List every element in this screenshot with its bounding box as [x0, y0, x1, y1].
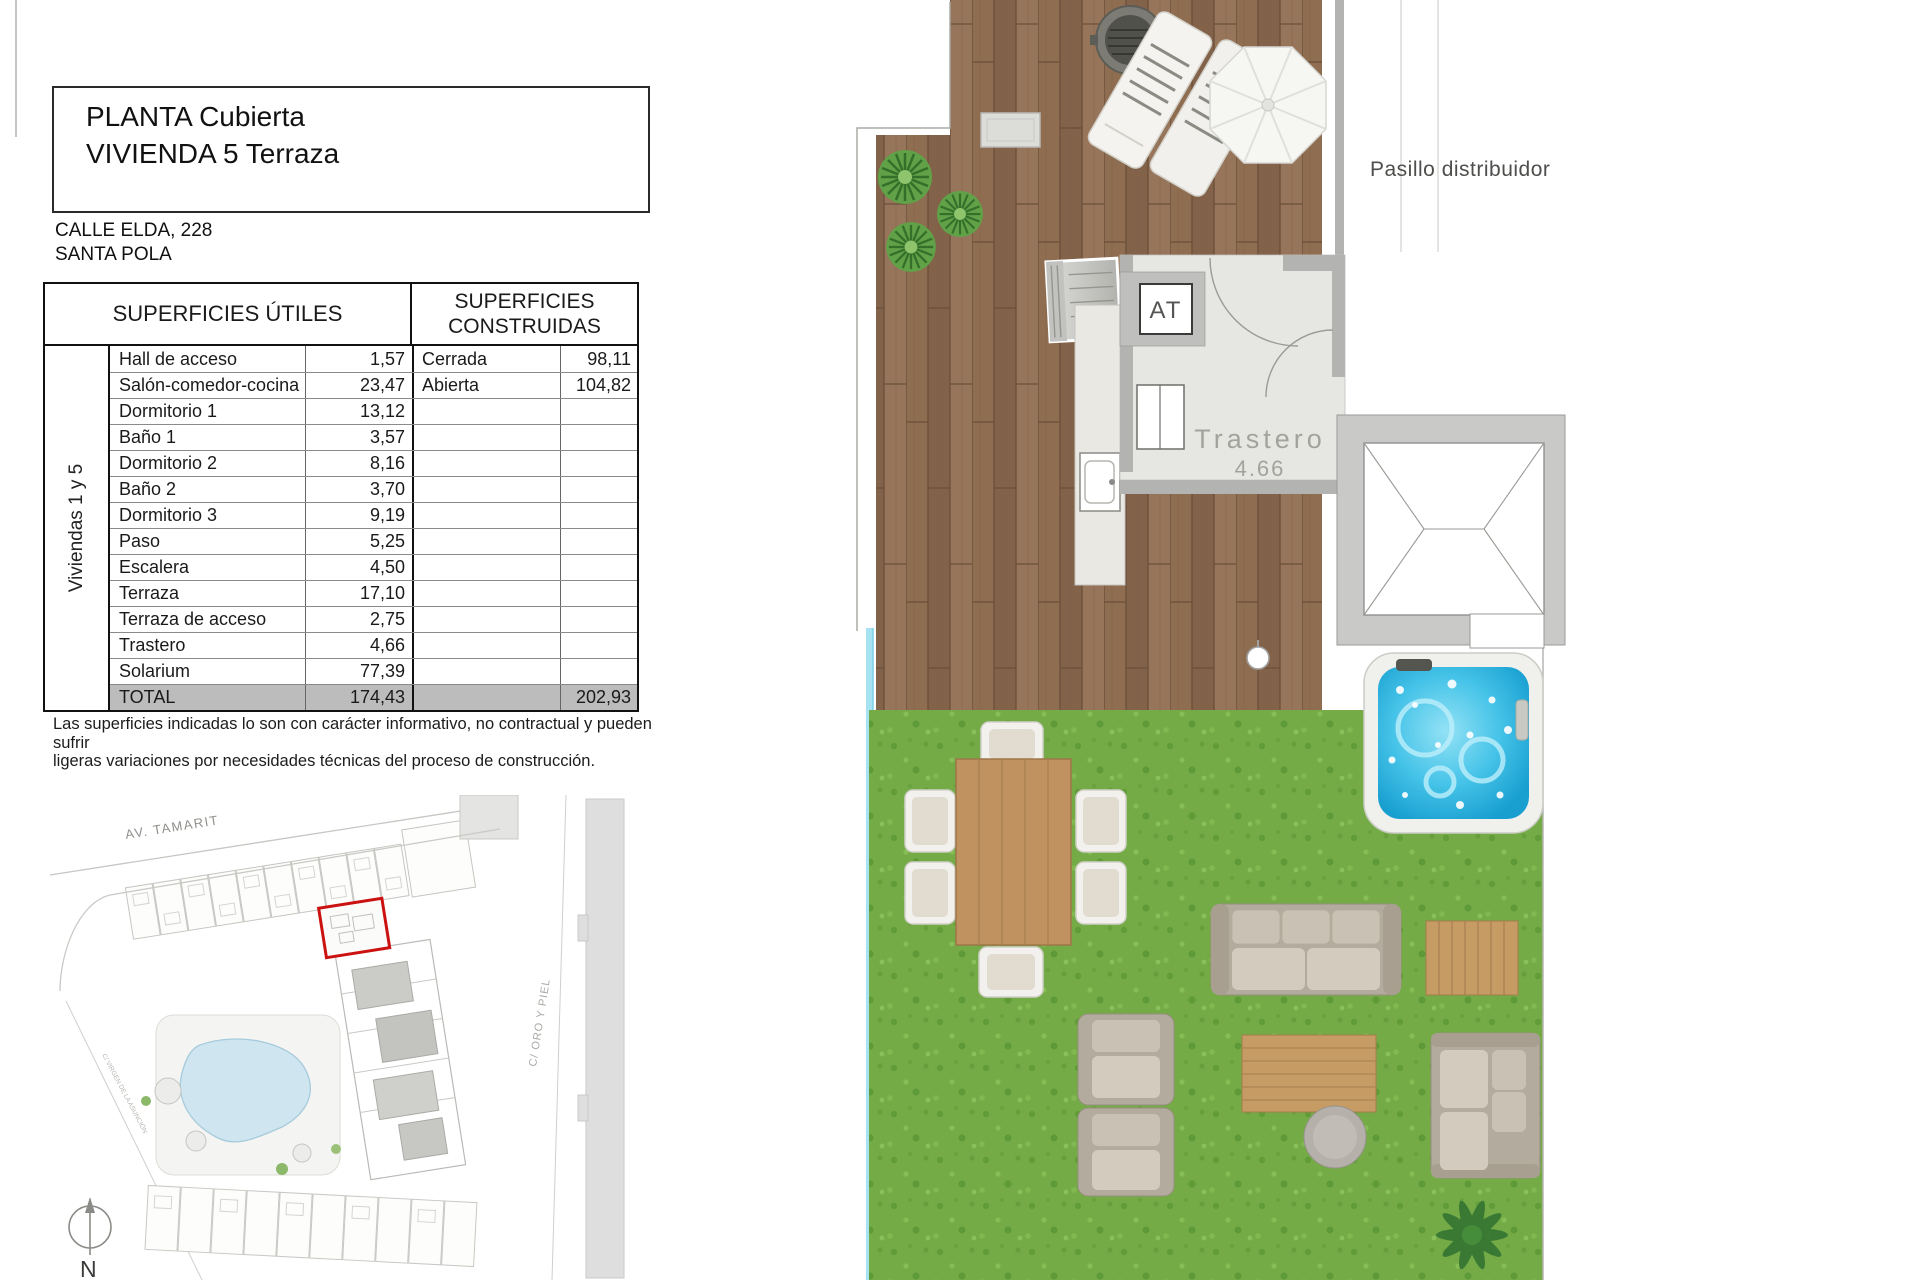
- table-row: Salón-comedor-cocina23,47Abierta104,82: [110, 372, 637, 398]
- title-block: PLANTA Cubierta VIVIENDA 5 Terraza: [52, 86, 650, 213]
- counter: [1075, 305, 1125, 585]
- dining-chair: [979, 947, 1043, 997]
- sofa-three-seat: [1211, 904, 1401, 995]
- tree: [186, 1131, 206, 1151]
- storage-label: Trastero: [1194, 424, 1326, 454]
- site-plan: AV. TAMARIT C/ ORO Y PIEL C/: [50, 795, 625, 1280]
- dining-chair: [905, 790, 955, 852]
- sheet-border-line: [15, 0, 17, 137]
- armchair: [1078, 1014, 1174, 1105]
- stair-block: [1337, 415, 1565, 648]
- table-row: Hall de acceso1,57Cerrada98,11: [110, 346, 637, 372]
- north-arrow: N: [69, 1197, 111, 1280]
- corridor-wall: [1335, 0, 1344, 258]
- street-label-oro-y-piel: C/ ORO Y PIEL: [527, 978, 553, 1068]
- shrub: [331, 1144, 341, 1154]
- sofa-two-seat: [1431, 1033, 1540, 1178]
- doormat: [981, 113, 1040, 147]
- table-row: Escalera4,50: [110, 554, 637, 580]
- table-row: Dormitorio 39,19: [110, 502, 637, 528]
- jacuzzi-headrest: [1396, 659, 1432, 671]
- shrub: [141, 1096, 151, 1106]
- potted-plant: [886, 222, 936, 272]
- building-notch: [578, 915, 588, 941]
- storage-area-value: 4.66: [1235, 456, 1286, 481]
- plan-title-line1: PLANTA Cubierta: [86, 98, 339, 135]
- coffee-table: [1426, 921, 1518, 995]
- dining-table: [956, 759, 1071, 945]
- sink: [1080, 453, 1120, 511]
- table-row: Dormitorio 113,12: [110, 398, 637, 424]
- main-building-complex: [335, 939, 465, 1179]
- table-row: Terraza de acceso2,75: [110, 606, 637, 632]
- highlighted-unit: [319, 898, 390, 957]
- corridor-label: Pasillo distribuidor: [1370, 158, 1550, 181]
- building-block: [460, 795, 518, 839]
- building-notch: [578, 1095, 588, 1121]
- at-label: AT: [1150, 297, 1183, 324]
- tree: [293, 1144, 311, 1162]
- dining-chair: [905, 862, 955, 924]
- north-label: N: [80, 1256, 97, 1280]
- plan-title-line2: VIVIENDA 5 Terraza: [86, 135, 339, 172]
- table-header-row: SUPERFICIES ÚTILES SUPERFICIES CONSTRUID…: [45, 284, 637, 346]
- dining-chair: [1076, 862, 1126, 924]
- header-superficies-construidas: SUPERFICIES CONSTRUIDAS: [412, 284, 637, 344]
- houses-row-bottom: [145, 1185, 477, 1266]
- table-total-row: TOTAL174,43202,93: [110, 684, 637, 710]
- storage-room: AT Trastero 4.66: [1120, 255, 1345, 494]
- armchair: [1078, 1108, 1174, 1196]
- terrace-floor-plan: AT Trastero 4.66 Pasillo distribuidor: [840, 0, 1920, 1280]
- header-superficies-utiles: SUPERFICIES ÚTILES: [45, 284, 412, 344]
- building-slab-right: [586, 799, 624, 1278]
- table-body: Viviendas 1 y 5 Hall de acceso1,57Cerrad…: [45, 346, 637, 710]
- table-row: Paso5,25: [110, 528, 637, 554]
- jacuzzi-panel: [1516, 700, 1528, 740]
- disclaimer-text: Las superficies indicadas lo son con car…: [53, 715, 653, 771]
- parasol: [1210, 47, 1326, 163]
- floorplan-sheet: PLANTA Cubierta VIVIENDA 5 Terraza CALLE…: [0, 0, 1920, 1280]
- outdoor-table: [1242, 1035, 1376, 1112]
- group-label-cell: Viviendas 1 y 5: [45, 346, 110, 710]
- street-line-right: [552, 795, 566, 1280]
- group-label: Viviendas 1 y 5: [66, 464, 88, 593]
- address-street: CALLE ELDA, 228: [55, 219, 212, 243]
- terraced-houses-row: [123, 820, 475, 941]
- street-label-av-tamarit: AV. TAMARIT: [124, 812, 220, 842]
- table-row: Trastero4,66: [110, 632, 637, 658]
- table-row: Dormitorio 28,16: [110, 450, 637, 476]
- table-row: Baño 13,57: [110, 424, 637, 450]
- shrub: [276, 1163, 288, 1175]
- potted-plant: [878, 150, 932, 204]
- tree: [155, 1078, 181, 1104]
- jacuzzi: [1364, 653, 1543, 833]
- table-row: Baño 23,70: [110, 476, 637, 502]
- ottoman: [1304, 1106, 1366, 1168]
- potted-plant: [937, 191, 983, 237]
- surface-areas-table: SUPERFICIES ÚTILES SUPERFICIES CONSTRUID…: [43, 282, 639, 712]
- address-block: CALLE ELDA, 228 SANTA POLA: [55, 219, 212, 267]
- address-city: SANTA POLA: [55, 243, 212, 267]
- table-row: Terraza17,10: [110, 580, 637, 606]
- dining-chair: [1076, 790, 1126, 852]
- table-row: Solarium77,39: [110, 658, 637, 684]
- door-opening: [1470, 614, 1544, 648]
